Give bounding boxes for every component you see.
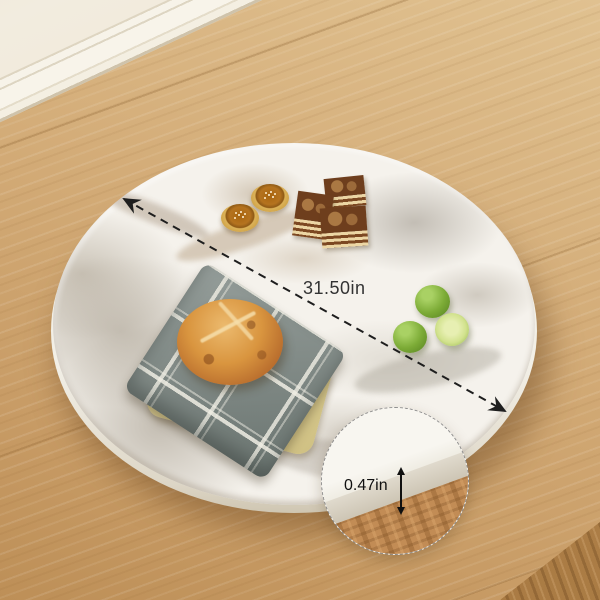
cake-top — [320, 205, 368, 233]
caramel-tart — [251, 184, 289, 212]
lime — [393, 321, 427, 353]
product-image: 31.50in 0.47in — [0, 0, 600, 600]
thickness-arrow-icon — [400, 474, 402, 508]
lime-half — [435, 313, 469, 346]
tart-sprinkles — [268, 194, 270, 196]
caramel-tart — [221, 204, 259, 232]
lime — [415, 285, 450, 318]
bread-loaf — [177, 299, 283, 385]
cake-layers — [321, 230, 368, 248]
thickness-inset-circle: 0.47in — [321, 407, 469, 555]
marble-vein — [94, 181, 213, 244]
marble-vein — [351, 338, 505, 402]
cake-slice — [320, 205, 369, 248]
thickness-label: 0.47in — [344, 477, 388, 495]
tart-sprinkles — [238, 214, 240, 216]
diameter-label: 31.50in — [303, 278, 366, 299]
